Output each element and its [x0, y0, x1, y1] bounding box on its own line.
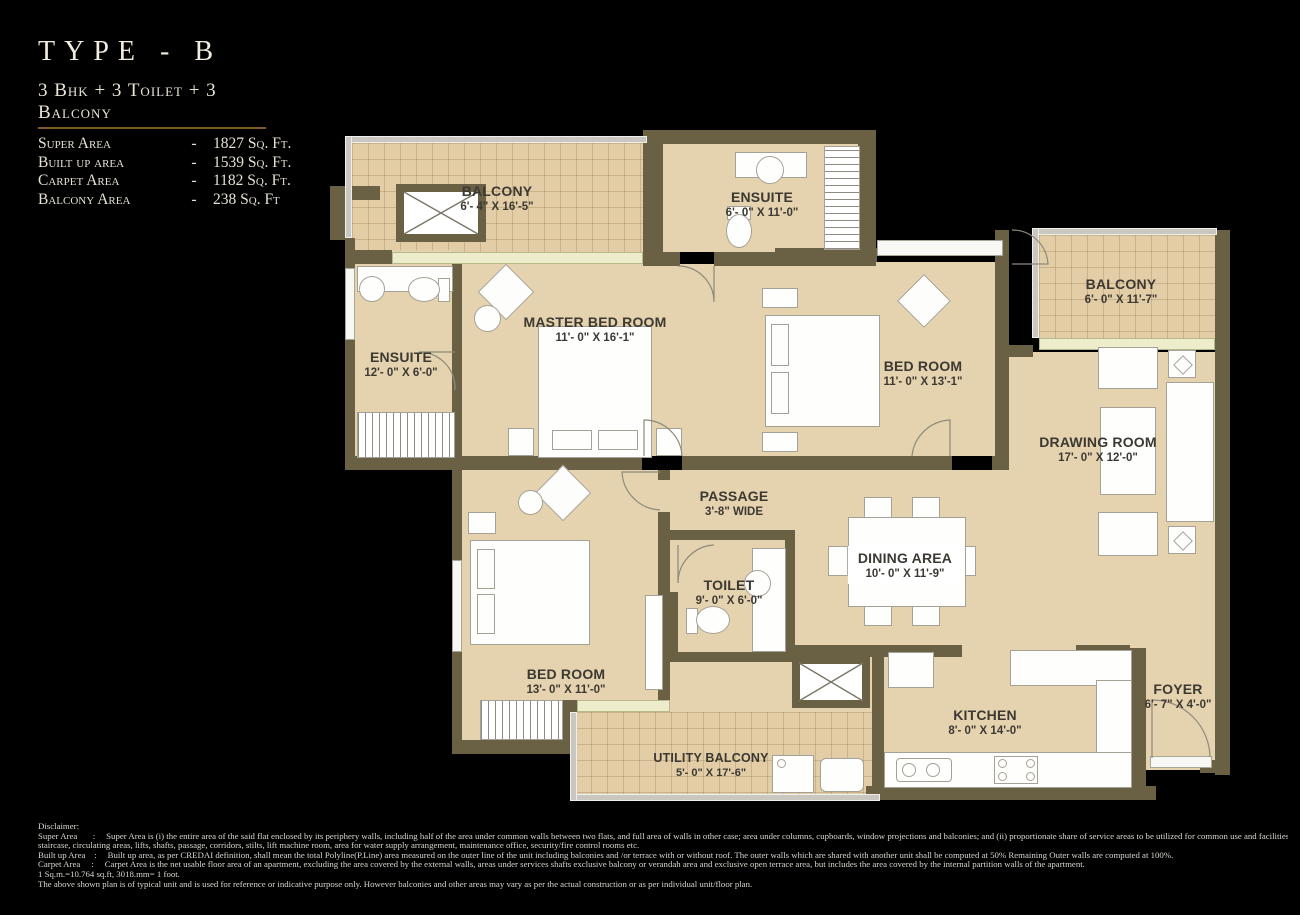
room-label-balcony-right: BALCONY 6'- 0" X 11'-7"	[1085, 276, 1158, 306]
armchair	[1098, 347, 1158, 389]
room-label-toilet: TOILET 9'- 0" X 6'-0"	[696, 577, 763, 607]
toilet-wall	[668, 530, 795, 540]
washbasin-icon	[359, 276, 385, 302]
disclaimer: Disclaimer: Super Area : Super Area is (…	[38, 822, 1288, 889]
utility-sink	[820, 758, 864, 792]
room-label-dining: DINING AREA 10'- 0" X 11'-9"	[848, 546, 962, 584]
area-label: Super Area	[38, 135, 175, 154]
area-value: 1827 Sq. Ft.	[213, 135, 291, 154]
room-label-bedroom-bottom: BED ROOM 13'- 0" X 11'-0"	[526, 666, 605, 696]
page-title: TYPE - B	[38, 36, 291, 68]
toilet-wall	[668, 652, 795, 662]
master-bed-pillow	[598, 430, 638, 450]
toilet-wall	[785, 530, 795, 662]
wardrobe-ensuite-left	[357, 412, 455, 458]
bedroom-right-window	[877, 240, 1003, 256]
page-subtitle: 3 Bhk + 3 Toilet + 3 Balcony	[38, 80, 266, 129]
wall	[330, 186, 346, 240]
wall	[858, 130, 876, 266]
balcony-right-parapet	[1032, 228, 1039, 338]
wall	[1007, 345, 1033, 357]
toilet-wall	[668, 592, 678, 662]
wall	[1215, 230, 1230, 775]
disclaimer-line: Super Area : Super Area is (i) the entir…	[38, 832, 1288, 842]
master-bed-pillow	[552, 430, 592, 450]
area-sep: -	[175, 135, 213, 154]
balcony-top-parapet	[345, 136, 647, 143]
utility-parapet	[570, 712, 577, 801]
room-label-ensuite-top: ENSUITE 6'- 0" X 11'-0"	[726, 189, 799, 219]
hob-burner	[998, 759, 1007, 768]
wardrobe-ensuite-top	[824, 146, 860, 250]
nightstand	[468, 512, 496, 534]
wardrobe-bedroom-bottom	[480, 700, 563, 740]
area-value: 1539 Sq. Ft.	[213, 154, 291, 173]
wall	[452, 740, 577, 754]
dresser	[645, 595, 663, 690]
ensuite-left-window	[345, 268, 355, 340]
wall	[658, 470, 670, 480]
side-table	[1168, 526, 1196, 554]
refrigerator	[888, 652, 934, 688]
wall	[345, 456, 642, 470]
wall	[643, 130, 876, 144]
area-table: Super Area - 1827 Sq. Ft. Built up area …	[38, 135, 291, 209]
balcony-right-parapet	[1032, 228, 1217, 235]
armchair	[1098, 512, 1158, 556]
disclaimer-line: The above shown plan is of typical unit …	[38, 880, 1288, 890]
room-label-balcony-top: BALCONY 6'- 4" X 16'-5"	[460, 183, 533, 213]
bedroom-right-pillow	[771, 372, 789, 414]
area-row-carpet: Carpet Area - 1182 Sq. Ft.	[38, 172, 291, 191]
dining-chair	[864, 604, 892, 626]
room-label-utility-balcony: UTILITY BALCONY 5'- 0" X 17'-6"	[653, 751, 768, 779]
nightstand	[508, 428, 534, 456]
balcony-top-parapet	[345, 136, 352, 238]
wall	[775, 248, 877, 262]
room-label-passage: PASSAGE 3'-8" WIDE	[700, 488, 769, 518]
entry-threshold	[1150, 756, 1212, 768]
room-label-foyer: FOYER 6'- 7" X 4'-0"	[1145, 681, 1212, 711]
wall	[995, 262, 1009, 470]
kitchen-sink-bowl	[902, 763, 916, 777]
disclaimer-line: Carpet Area : Carpet Area is the net usa…	[38, 860, 1288, 870]
nightstand	[762, 288, 798, 308]
area-sep: -	[175, 172, 213, 191]
wall	[866, 786, 1156, 800]
bedroom-bottom-window	[452, 560, 462, 652]
bedroom-bottom-pillow	[477, 549, 495, 589]
floor-plan-page: { "header": { "title": "TYPE - B", "subt…	[0, 0, 1300, 915]
disclaimer-line: Built up Area : Built up area, as per CR…	[38, 851, 1288, 861]
wall	[682, 456, 952, 470]
toilet-icon	[726, 214, 752, 248]
area-value: 1182 Sq. Ft.	[213, 172, 291, 191]
washbasin-icon	[756, 156, 784, 184]
area-row-builtup: Built up area - 1539 Sq. Ft.	[38, 154, 291, 173]
room-label-ensuite-left: ENSUITE 12'- 0" X 6'-0"	[364, 349, 437, 379]
hob-burner	[998, 772, 1007, 781]
utility-slider	[577, 700, 670, 712]
room-label-kitchen: KITCHEN 8'- 0" X 14'-0"	[948, 707, 1021, 737]
area-label: Built up area	[38, 154, 175, 173]
master-balcony-slider	[392, 252, 643, 264]
area-label: Balcony Area	[38, 191, 175, 210]
wall	[643, 252, 680, 266]
disclaimer-line: staircase, circulating areas, lifts, sha…	[38, 841, 1288, 851]
toilet-icon	[408, 277, 440, 302]
disclaimer-line: 1 Sq.m.=10.764 sq.ft, 3018.mm= 1 foot.	[38, 870, 1288, 880]
disclaimer-line: Disclaimer:	[38, 822, 1288, 832]
wall	[1130, 648, 1146, 793]
dining-chair	[912, 604, 940, 626]
sofa	[1166, 382, 1214, 522]
side-table	[1168, 350, 1196, 378]
area-sep: -	[175, 154, 213, 173]
bedroom-right-pillow	[771, 324, 789, 366]
area-value: 238 Sq. Ft	[213, 191, 280, 210]
utility-parapet	[575, 794, 880, 801]
kitchen-sink-bowl	[926, 763, 940, 777]
area-label: Carpet Area	[38, 172, 175, 191]
title-block: TYPE - B 3 Bhk + 3 Toilet + 3 Balcony Su…	[38, 36, 291, 209]
wall	[872, 650, 884, 786]
hob-burner	[1026, 759, 1035, 768]
nightstand	[762, 432, 798, 452]
toilet-icon	[696, 606, 730, 634]
dining-chair	[864, 497, 892, 519]
washing-machine-door	[777, 759, 786, 768]
service-shaft	[792, 656, 870, 708]
room-label-master-bedroom: MASTER BED ROOM 11'- 0" X 16'-1"	[524, 314, 667, 344]
hob-burner	[1026, 772, 1035, 781]
room-label-bedroom-right: BED ROOM 11'- 0" X 13'-1"	[883, 358, 962, 388]
bedroom-bottom-side-table	[518, 490, 543, 515]
dining-chair	[828, 546, 848, 576]
dining-chair	[912, 497, 940, 519]
master-side-table	[474, 305, 501, 332]
wall	[643, 136, 663, 264]
nightstand	[656, 428, 682, 456]
bedroom-bottom-pillow	[477, 594, 495, 634]
room-label-drawing-room: DRAWING ROOM 17'- 0" X 12'-0"	[1039, 434, 1157, 464]
area-sep: -	[175, 191, 213, 210]
area-row-super: Super Area - 1827 Sq. Ft.	[38, 135, 291, 154]
area-row-balcony: Balcony Area - 238 Sq. Ft	[38, 191, 291, 210]
